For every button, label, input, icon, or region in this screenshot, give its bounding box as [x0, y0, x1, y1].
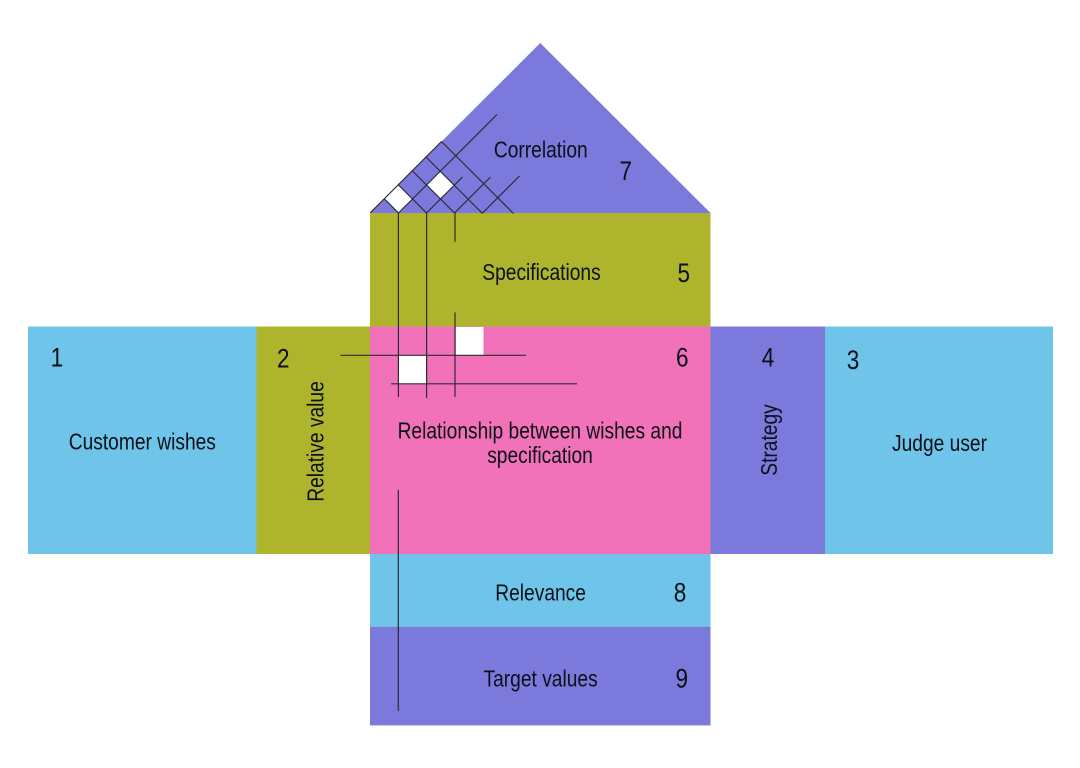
svg-text:Specifications: Specifications [482, 260, 600, 285]
svg-text:Judge user: Judge user [892, 431, 987, 456]
svg-text:Relative value: Relative value [304, 381, 329, 502]
svg-text:3: 3 [847, 345, 860, 375]
svg-text:Target values: Target values [484, 667, 598, 692]
svg-text:9: 9 [675, 664, 688, 694]
svg-text:Relevance: Relevance [495, 581, 586, 606]
svg-text:2: 2 [277, 344, 290, 374]
svg-text:Strategy: Strategy [758, 404, 783, 476]
svg-text:Customer wishes: Customer wishes [69, 430, 216, 455]
svg-text:6: 6 [676, 343, 689, 373]
svg-text:specification: specification [487, 443, 593, 468]
svg-text:7: 7 [619, 156, 632, 186]
svg-text:Relationship between wishes an: Relationship between wishes and [398, 419, 683, 444]
svg-text:1: 1 [51, 343, 64, 373]
svg-text:4: 4 [762, 343, 775, 373]
svg-text:5: 5 [677, 258, 690, 288]
svg-text:Correlation: Correlation [494, 138, 588, 163]
svg-text:8: 8 [674, 578, 687, 608]
